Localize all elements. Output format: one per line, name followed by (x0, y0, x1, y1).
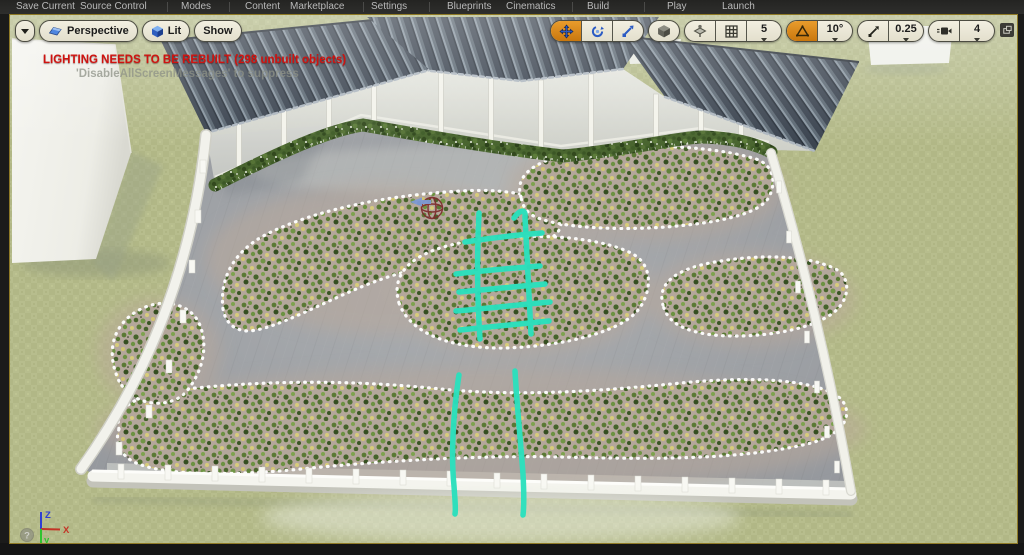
suppress-hint-text: 'DisableAllScreenMessages' to suppress (76, 68, 299, 80)
toolbar-item-save-current[interactable]: Save Current (16, 0, 75, 14)
toolbar-item-settings[interactable]: Settings (371, 0, 407, 14)
toolbar-item-cinematics[interactable]: Cinematics (506, 0, 555, 14)
camera-speed-value: 4 (974, 23, 980, 35)
toolbar-item-play[interactable]: Play (667, 0, 686, 14)
main-toolbar: Save Current Source Control Modes Conten… (0, 0, 1024, 15)
move-icon (559, 24, 574, 39)
scale-snap-group: 0.25 (857, 20, 924, 42)
chevron-down-icon (974, 38, 980, 42)
toolbar-item-source-control[interactable]: Source Control (80, 0, 147, 14)
grid-snap-toggle-button[interactable] (715, 21, 746, 41)
toolbar-separator (167, 2, 168, 12)
viewport-toolbar-right: 5 10° (550, 20, 995, 42)
move-tool-button[interactable] (551, 21, 581, 41)
lit-label: Lit (168, 25, 181, 37)
chevron-down-icon (21, 29, 29, 34)
rotate-icon (590, 24, 605, 39)
camera-speed-group: 4 (928, 20, 995, 42)
editor-chrome-right (1017, 14, 1024, 555)
toolbar-separator (429, 2, 430, 12)
grid-snap-group: 5 (684, 20, 782, 42)
editor-chrome-bottom (0, 543, 1024, 555)
axis-z-label: Z (45, 510, 51, 521)
axis-x-label: X (63, 525, 70, 536)
chevron-down-icon (832, 38, 838, 42)
toolbar-separator (644, 2, 645, 12)
perspective-label: Perspective (67, 25, 129, 37)
toolbar-item-blueprints[interactable]: Blueprints (447, 0, 491, 14)
help-glyph: ? (24, 531, 30, 542)
scale-snap-toggle-button[interactable] (858, 21, 888, 41)
toolbar-separator (363, 2, 364, 12)
show-menu-button[interactable]: Show (194, 20, 241, 42)
camera-icon (936, 25, 952, 37)
ground-haze (261, 491, 741, 543)
axis-y-label: y (44, 535, 50, 543)
viewport-options-button[interactable] (15, 20, 35, 42)
perspective-icon (48, 25, 63, 37)
toolbar-item-modes[interactable]: Modes (181, 0, 211, 14)
scale-snap-icon (867, 25, 880, 38)
coordinate-system-button[interactable] (648, 20, 680, 42)
grid-snap-value: 5 (761, 23, 767, 35)
show-label: Show (203, 25, 232, 37)
chevron-down-icon (761, 38, 767, 42)
rotation-snap-value-button[interactable]: 10° (817, 20, 852, 42)
lighting-rebuild-warning: LIGHTING NEEDS TO BE REBUILT (298 unbuil… (43, 54, 346, 66)
maximize-viewport-button[interactable] (1000, 23, 1014, 37)
surface-snap-icon (693, 24, 707, 38)
camera-speed-value-button[interactable]: 4 (959, 20, 994, 42)
grid-icon (725, 25, 738, 38)
maximize-icon (1001, 24, 1013, 36)
scale-snap-value-button[interactable]: 0.25 (888, 20, 923, 42)
rotation-snap-group: 10° (786, 20, 853, 42)
chevron-down-icon (903, 38, 909, 42)
lit-mode-button[interactable]: Lit (142, 20, 190, 42)
toolbar-separator (229, 2, 230, 12)
surface-snap-button[interactable] (685, 21, 715, 41)
rotate-tool-button[interactable] (581, 21, 612, 41)
grid-snap-value-button[interactable]: 5 (746, 20, 781, 42)
toolbar-item-launch[interactable]: Launch (722, 0, 755, 14)
viewport-toolbar-left: Perspective Lit Show (15, 20, 242, 42)
transform-tools-group (550, 20, 644, 42)
editor-chrome-left (0, 14, 9, 555)
world-cube-icon (657, 24, 671, 38)
scale-tool-button[interactable] (612, 21, 643, 41)
toolbar-item-marketplace[interactable]: Marketplace (290, 0, 344, 14)
toolbar-item-content[interactable]: Content (245, 0, 280, 14)
lit-cube-icon (151, 25, 164, 38)
rotation-snap-value: 10° (827, 23, 844, 35)
scale-snap-value: 0.25 (895, 23, 916, 35)
scale-icon (621, 24, 635, 38)
level-viewport[interactable]: ? Z X y LIGHTING NEEDS TO BE REBUILT (29… (9, 14, 1018, 544)
angle-snap-icon (796, 25, 809, 37)
rotation-snap-toggle-button[interactable] (787, 21, 817, 41)
toolbar-item-build[interactable]: Build (587, 0, 609, 14)
perspective-button[interactable]: Perspective (39, 20, 138, 42)
unreal-editor-window: Save Current Source Control Modes Conten… (0, 0, 1024, 555)
toolbar-separator (572, 2, 573, 12)
scene-render[interactable]: ? Z X y (10, 15, 1017, 543)
camera-speed-button[interactable] (929, 21, 959, 41)
